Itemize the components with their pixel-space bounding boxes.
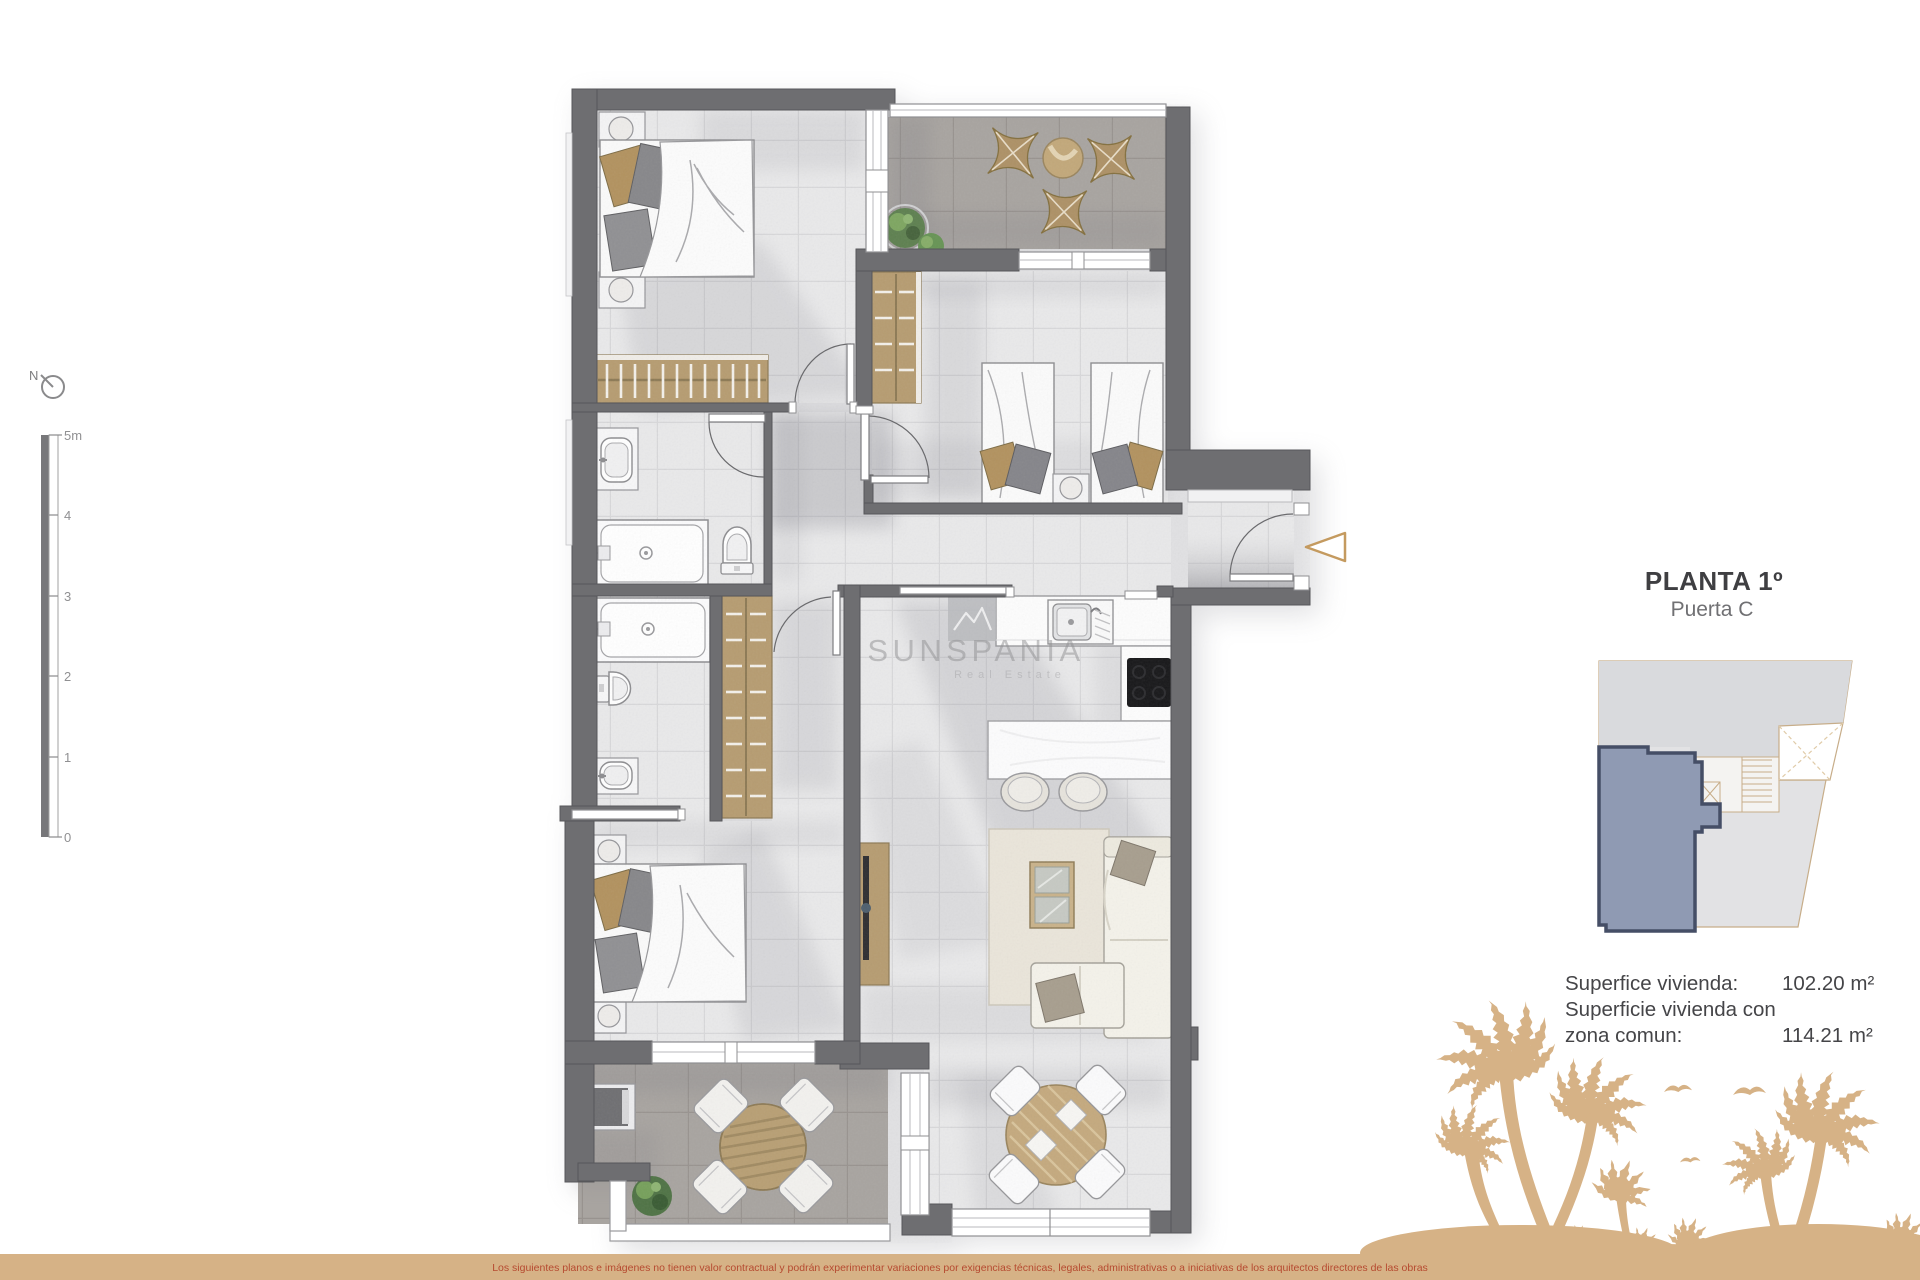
svg-text:Los siguientes planos e imágen: Los siguientes planos e imágenes no tien… <box>492 1262 1428 1274</box>
svg-text:Superficie vivienda con: Superficie vivienda con <box>1565 998 1776 1021</box>
svg-text:102.20 m²: 102.20 m² <box>1782 972 1874 995</box>
svg-text:4: 4 <box>64 508 71 523</box>
svg-text:zona comun:: zona comun: <box>1565 1024 1682 1047</box>
svg-text:0: 0 <box>64 830 71 845</box>
svg-text:Real Estate: Real Estate <box>954 669 1066 681</box>
svg-text:Superfice vivienda:: Superfice vivienda: <box>1565 972 1738 995</box>
svg-text:SUNSPANIA: SUNSPANIA <box>867 633 1084 668</box>
svg-text:N: N <box>29 368 38 383</box>
svg-text:114.21 m²: 114.21 m² <box>1782 1024 1873 1047</box>
svg-text:5m: 5m <box>64 428 82 443</box>
svg-text:3: 3 <box>64 589 71 604</box>
svg-text:1: 1 <box>64 750 71 765</box>
svg-text:PLANTA 1º: PLANTA 1º <box>1645 566 1783 596</box>
svg-text:Puerta C: Puerta C <box>1671 598 1754 621</box>
svg-text:2: 2 <box>64 669 71 684</box>
